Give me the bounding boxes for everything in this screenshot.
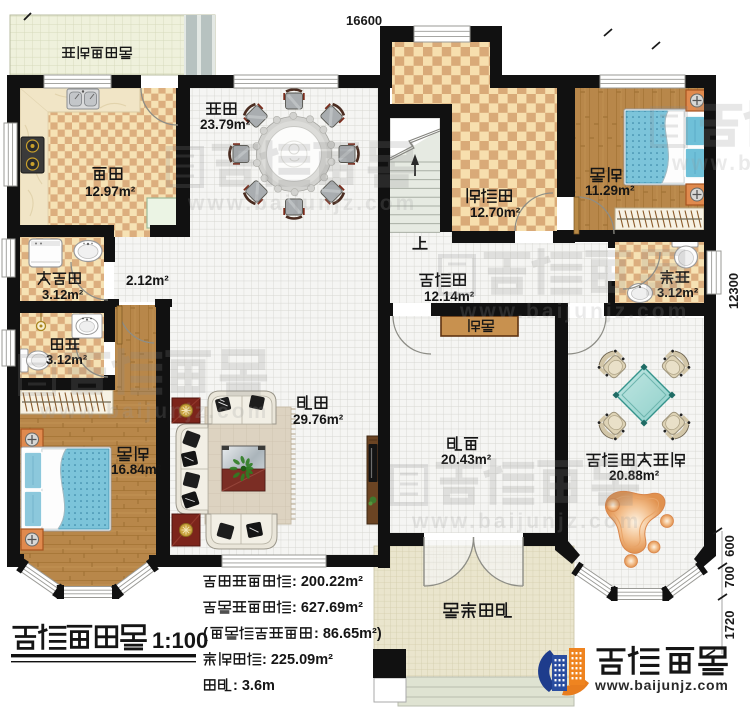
svg-text:29.76m²: 29.76m²: [293, 412, 344, 427]
svg-text:12.70m²: 12.70m²: [470, 205, 521, 220]
svg-text:12300: 12300: [726, 273, 741, 309]
svg-text:: 627.69m²: : 627.69m²: [292, 600, 363, 616]
svg-text:www.baijunjz.com: www.baijunjz.com: [187, 192, 417, 215]
svg-text:3.12m²: 3.12m²: [42, 287, 84, 302]
svg-text:www.baijunjz.com: www.baijunjz.com: [411, 510, 641, 533]
svg-text:23.79m²: 23.79m²: [200, 117, 251, 132]
svg-text:11.29m²: 11.29m²: [585, 183, 635, 198]
svg-text:2.12m²: 2.12m²: [126, 273, 169, 288]
svg-text:12.97m²: 12.97m²: [85, 184, 136, 199]
svg-text:: 3.6m: : 3.6m: [233, 678, 275, 694]
svg-text:www.baijunjz.com: www.baijunjz.com: [671, 152, 750, 175]
svg-text:: 200.22m²: : 200.22m²: [292, 574, 363, 590]
svg-text:www.baijunjz.com: www.baijunjz.com: [39, 400, 269, 423]
svg-text:www.baijunjz.com: www.baijunjz.com: [594, 677, 729, 693]
svg-text:600: 600: [722, 535, 737, 557]
svg-text:1720: 1720: [722, 611, 737, 640]
svg-text:1:100: 1:100: [152, 628, 208, 653]
svg-text:700: 700: [722, 566, 737, 588]
svg-text:www.baijunjz.com: www.baijunjz.com: [459, 300, 689, 323]
svg-text:16.84m²: 16.84m²: [111, 462, 162, 477]
svg-text:(: (: [203, 625, 208, 642]
svg-text:: 225.09m²: : 225.09m²: [262, 652, 333, 668]
svg-text:16600: 16600: [346, 13, 382, 28]
svg-text:: 86.65m²): : 86.65m²): [314, 626, 382, 642]
